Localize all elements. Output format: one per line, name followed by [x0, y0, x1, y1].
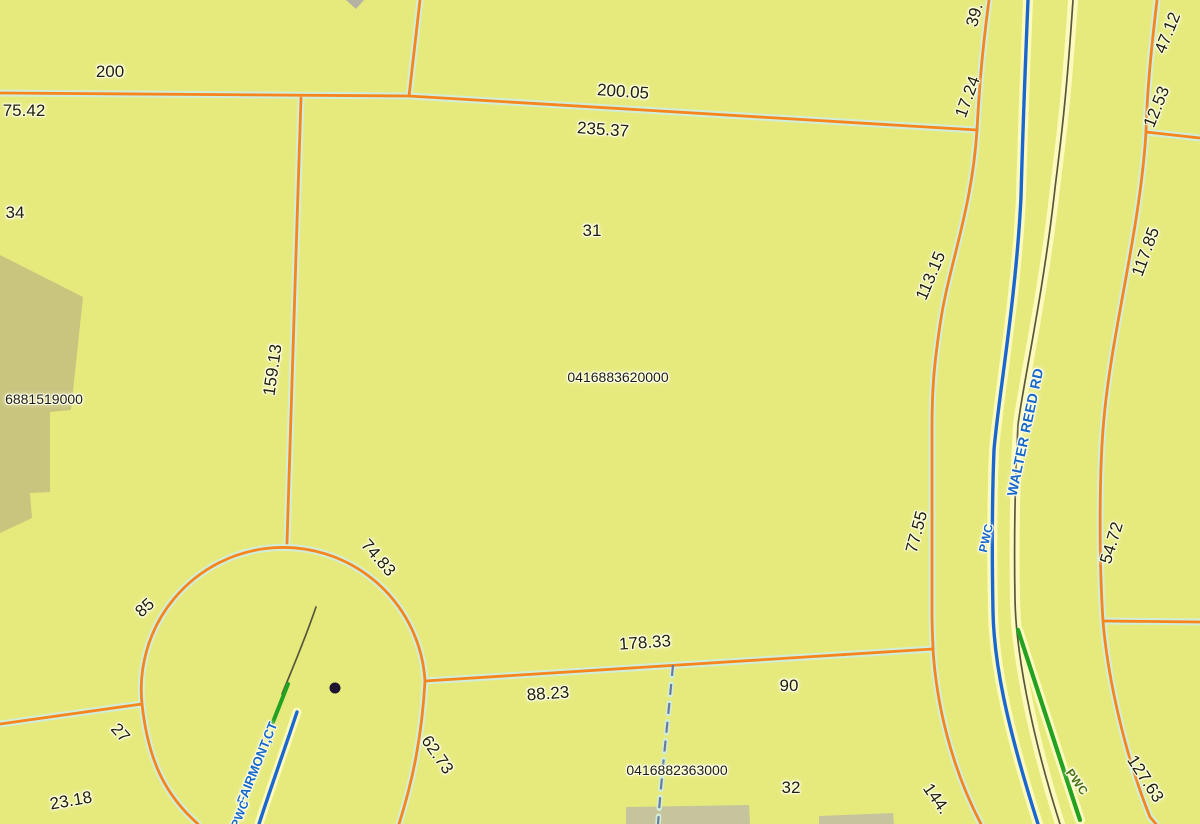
- address-point-dot: [330, 683, 341, 694]
- parcel-line-east-branch-lower: [1103, 621, 1200, 622]
- building-footprint-bottom-center: [626, 805, 750, 824]
- parcel-map-canvas[interactable]: 20075.4234200.05235.37310416883620000159…: [0, 0, 1200, 824]
- parcel-map-graphics: [0, 0, 1200, 824]
